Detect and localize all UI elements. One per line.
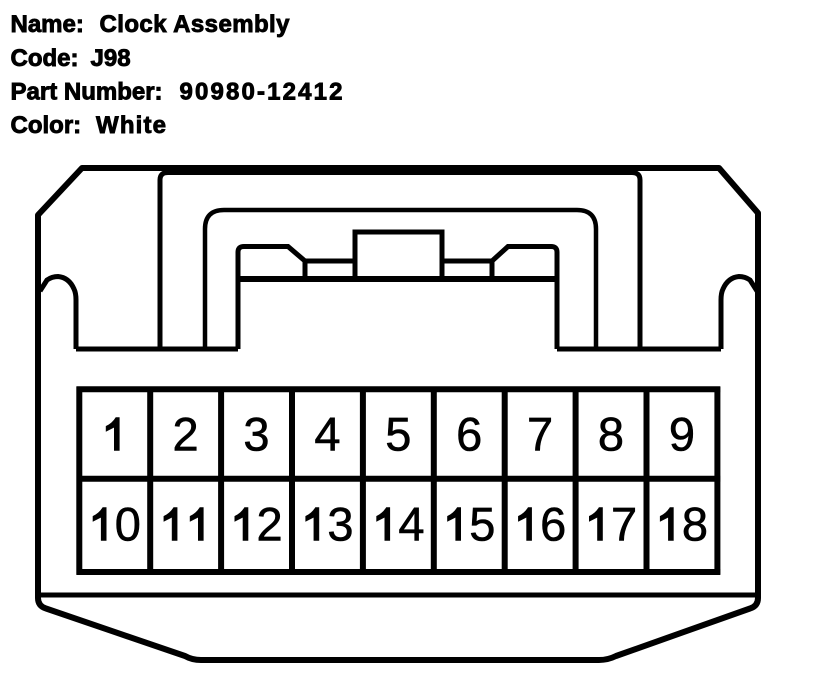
- svg-text:3: 3: [243, 408, 269, 461]
- svg-text:4: 4: [314, 408, 340, 461]
- svg-text:Name:: Name:: [11, 11, 84, 38]
- svg-text:6: 6: [456, 408, 482, 461]
- svg-text:4: 4: [398, 498, 424, 551]
- svg-text:9: 9: [669, 408, 695, 461]
- svg-text:2: 2: [257, 498, 283, 551]
- svg-text:7: 7: [611, 498, 637, 551]
- svg-text:3: 3: [327, 498, 353, 551]
- svg-text:Clock Assembly: Clock Assembly: [100, 11, 291, 38]
- svg-text:Part Number:: Part Number:: [11, 79, 163, 106]
- svg-text:2: 2: [173, 408, 199, 461]
- svg-text:8: 8: [598, 408, 624, 461]
- svg-text:Color:: Color:: [11, 112, 82, 139]
- svg-text:6: 6: [540, 498, 566, 551]
- svg-text:5: 5: [469, 498, 495, 551]
- svg-text:J98: J98: [91, 45, 131, 72]
- svg-text:Code:: Code:: [11, 45, 79, 72]
- svg-text:White: White: [96, 112, 166, 139]
- svg-text:90980-12412: 90980-12412: [180, 79, 343, 106]
- svg-text:0: 0: [115, 498, 141, 551]
- svg-text:7: 7: [527, 408, 553, 461]
- svg-text:8: 8: [682, 498, 708, 551]
- svg-text:5: 5: [385, 408, 411, 461]
